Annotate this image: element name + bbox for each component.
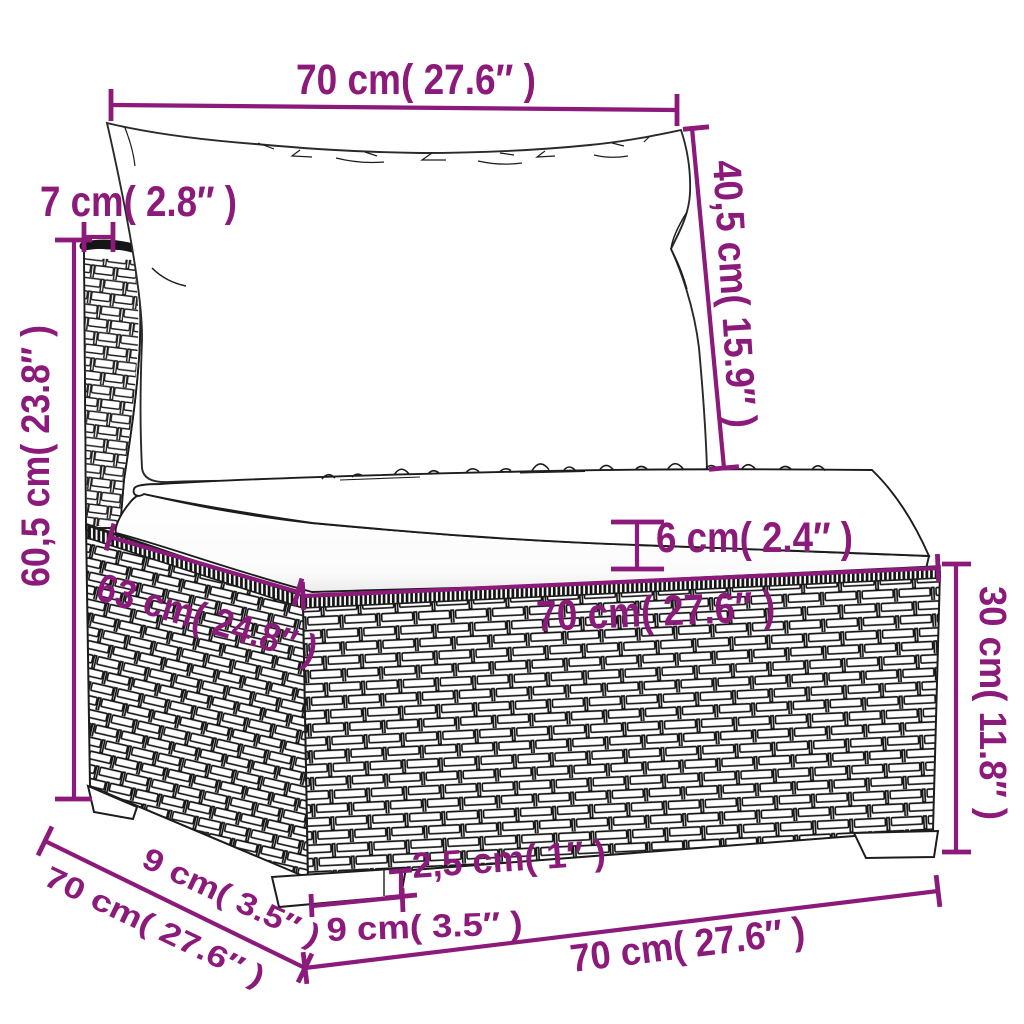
svg-text:9 cm( 3.5″ ): 9 cm( 3.5″ ) <box>326 904 523 948</box>
svg-text:6 cm( 2.4″ ): 6 cm( 2.4″ ) <box>656 514 853 562</box>
svg-text:30 cm( 11.8″ ): 30 cm( 11.8″ ) <box>971 586 1013 820</box>
svg-text:60,5 cm( 23.8″ ): 60,5 cm( 23.8″ ) <box>14 325 58 587</box>
svg-text:7 cm( 2.8″ ): 7 cm( 2.8″ ) <box>40 178 237 226</box>
svg-text:70 cm( 27.6″ ): 70 cm( 27.6″ ) <box>296 56 536 104</box>
